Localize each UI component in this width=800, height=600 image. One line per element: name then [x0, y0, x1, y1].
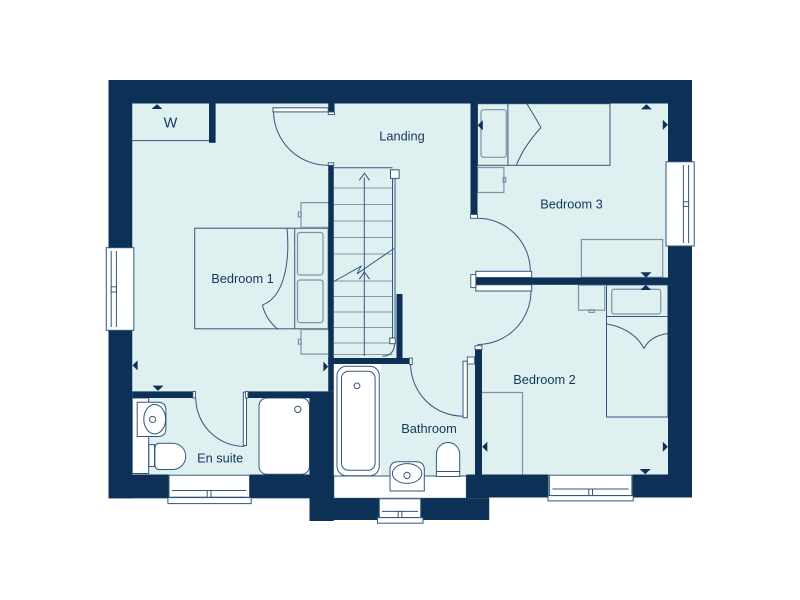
svg-text:W: W [164, 115, 178, 131]
svg-text:Bedroom 1: Bedroom 1 [211, 271, 274, 286]
svg-text:Bathroom: Bathroom [401, 421, 456, 436]
svg-text:Landing: Landing [379, 128, 425, 143]
svg-text:Bedroom 2: Bedroom 2 [513, 372, 576, 387]
svg-text:Bedroom 3: Bedroom 3 [540, 197, 603, 212]
svg-text:En suite: En suite [197, 451, 243, 466]
